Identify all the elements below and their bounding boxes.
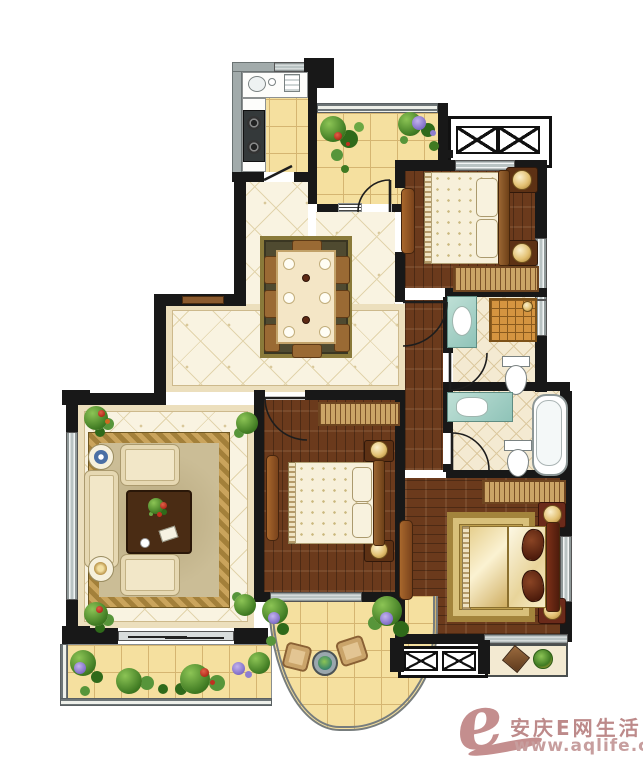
watermark-site-url: www.aqlife.com bbox=[514, 736, 643, 756]
hallway-door-arc bbox=[403, 302, 447, 346]
watermark: e 安庆E网生活 www.aqlife.com bbox=[438, 686, 640, 768]
bathroom-south-door-arc bbox=[452, 433, 489, 470]
bedroom-middle-door-arc bbox=[265, 398, 307, 440]
kitchen-door-line bbox=[264, 166, 292, 180]
entry-garden-door-arc bbox=[358, 180, 390, 212]
floor-plan: e 安庆E网生活 www.aqlife.com bbox=[0, 0, 643, 771]
bathroom-north-door-arc bbox=[450, 353, 487, 390]
door-arcs-overlay bbox=[0, 0, 643, 771]
